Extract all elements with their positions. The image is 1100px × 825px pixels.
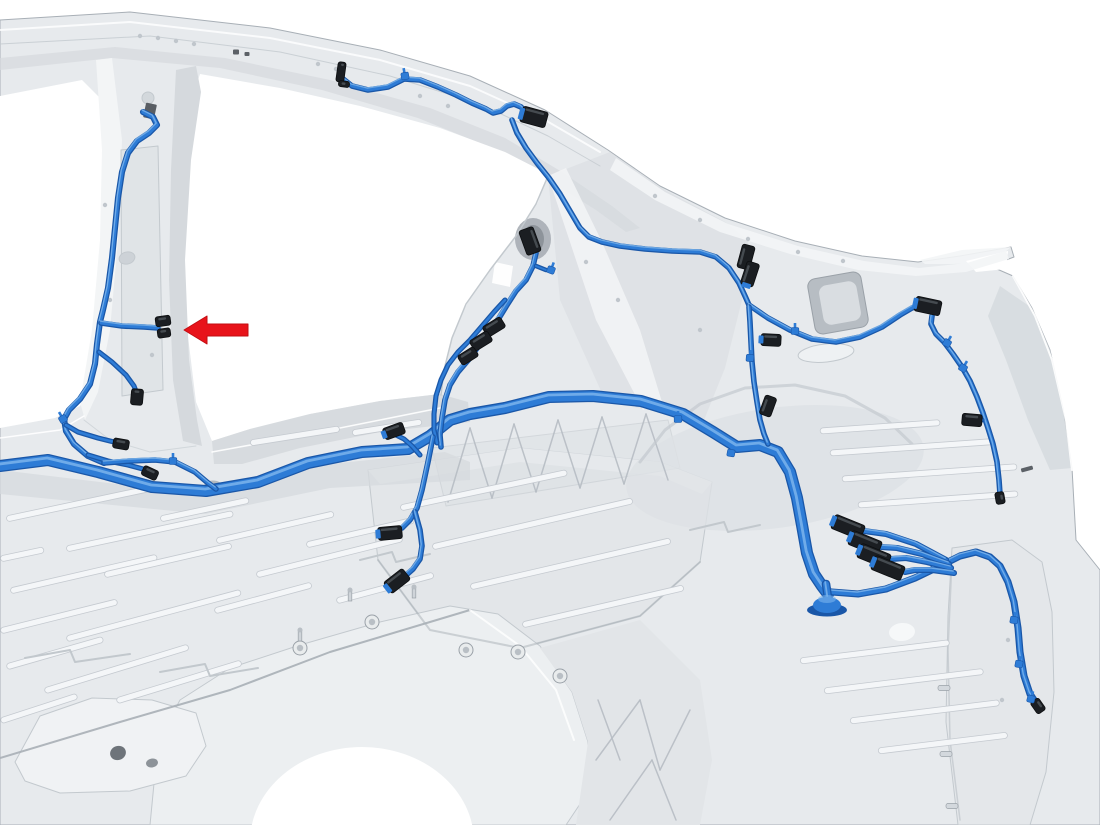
rail-square-mark-1: [233, 50, 239, 55]
clip-head: [169, 458, 177, 465]
rivet-hole: [653, 194, 657, 198]
bolt-head: [297, 645, 303, 651]
bolt-head: [369, 619, 375, 625]
rivet-hole: [138, 34, 142, 38]
clip-head: [727, 449, 736, 457]
rivet-hole: [841, 259, 845, 263]
bolt: [553, 669, 567, 683]
down-branch-connector-1-body: [761, 333, 782, 346]
clip-head: [746, 354, 754, 362]
rivet-hole: [616, 298, 620, 302]
harness-routing-svg: [0, 0, 1100, 825]
rivet-hole: [150, 353, 154, 357]
rivet-hole: [698, 328, 702, 332]
arrow-target-clip-upper-body: [155, 315, 171, 327]
pillar-dangler-1: [130, 389, 143, 406]
clip-head: [791, 328, 799, 335]
stud-tip: [298, 628, 303, 633]
rear-rail: [946, 540, 1054, 825]
floor-dangler-connector-body: [377, 525, 402, 540]
rivet-hole: [446, 104, 450, 108]
stud-tip: [348, 588, 353, 593]
bolt: [365, 615, 379, 629]
rivet-hole: [796, 250, 800, 254]
clip-head: [1010, 616, 1019, 624]
grommet-highlight: [818, 595, 836, 603]
rail-stud: [946, 804, 958, 809]
rivet-hole: [156, 36, 160, 40]
bolt-head: [515, 649, 521, 655]
pillar-hole-upper: [142, 92, 154, 104]
rivet-hole: [1000, 698, 1004, 702]
rivet-hole: [746, 237, 750, 241]
arrow-target-clip-upper: [155, 315, 171, 327]
pillar-inner-recess: [121, 146, 163, 396]
rivet-hole: [316, 62, 320, 66]
clip-head: [401, 72, 410, 80]
rivet-hole: [698, 218, 702, 222]
floor-dangler-connector: [375, 525, 403, 540]
arrow-target-clip-lower-body: [157, 328, 171, 339]
bolt-head: [463, 647, 469, 653]
bolt: [511, 645, 525, 659]
arrow-target-clip-lower: [157, 328, 171, 339]
dpillar-mid-connector-body: [962, 413, 983, 427]
rail-stud: [938, 686, 950, 691]
clip-head: [1026, 695, 1035, 704]
vehicle-body-illustration: [0, 0, 1100, 825]
clip-head: [674, 416, 682, 423]
quarter-rect-hole-inner: [818, 280, 862, 326]
bolt-head: [557, 673, 563, 679]
rivet-hole: [584, 260, 588, 264]
down-branch-connector-1: [758, 333, 781, 346]
bolt: [293, 641, 307, 655]
clip-head: [1015, 660, 1024, 668]
dpillar-end-connector-body: [995, 491, 1006, 504]
floor-dangler-connector-latch: [375, 529, 381, 538]
window-bracket-cutout: [492, 262, 513, 287]
rail-stud: [940, 752, 952, 757]
rivet-hole: [418, 94, 422, 98]
rail-square-mark-2: [245, 52, 250, 56]
rivet-hole: [192, 42, 196, 46]
rivet-hole: [103, 203, 107, 207]
down-branch-connector-1-latch: [758, 335, 763, 343]
stud: [412, 585, 417, 599]
dpillar-mid-connector: [962, 413, 983, 427]
roof-connector-foot: [338, 80, 350, 87]
stud: [348, 588, 353, 602]
stud-tip: [412, 585, 417, 590]
rivet-hole: [174, 39, 178, 43]
stud: [298, 628, 303, 642]
rivet-hole: [1006, 638, 1010, 642]
dpillar-end-connector: [995, 491, 1006, 504]
bolt: [459, 643, 473, 657]
